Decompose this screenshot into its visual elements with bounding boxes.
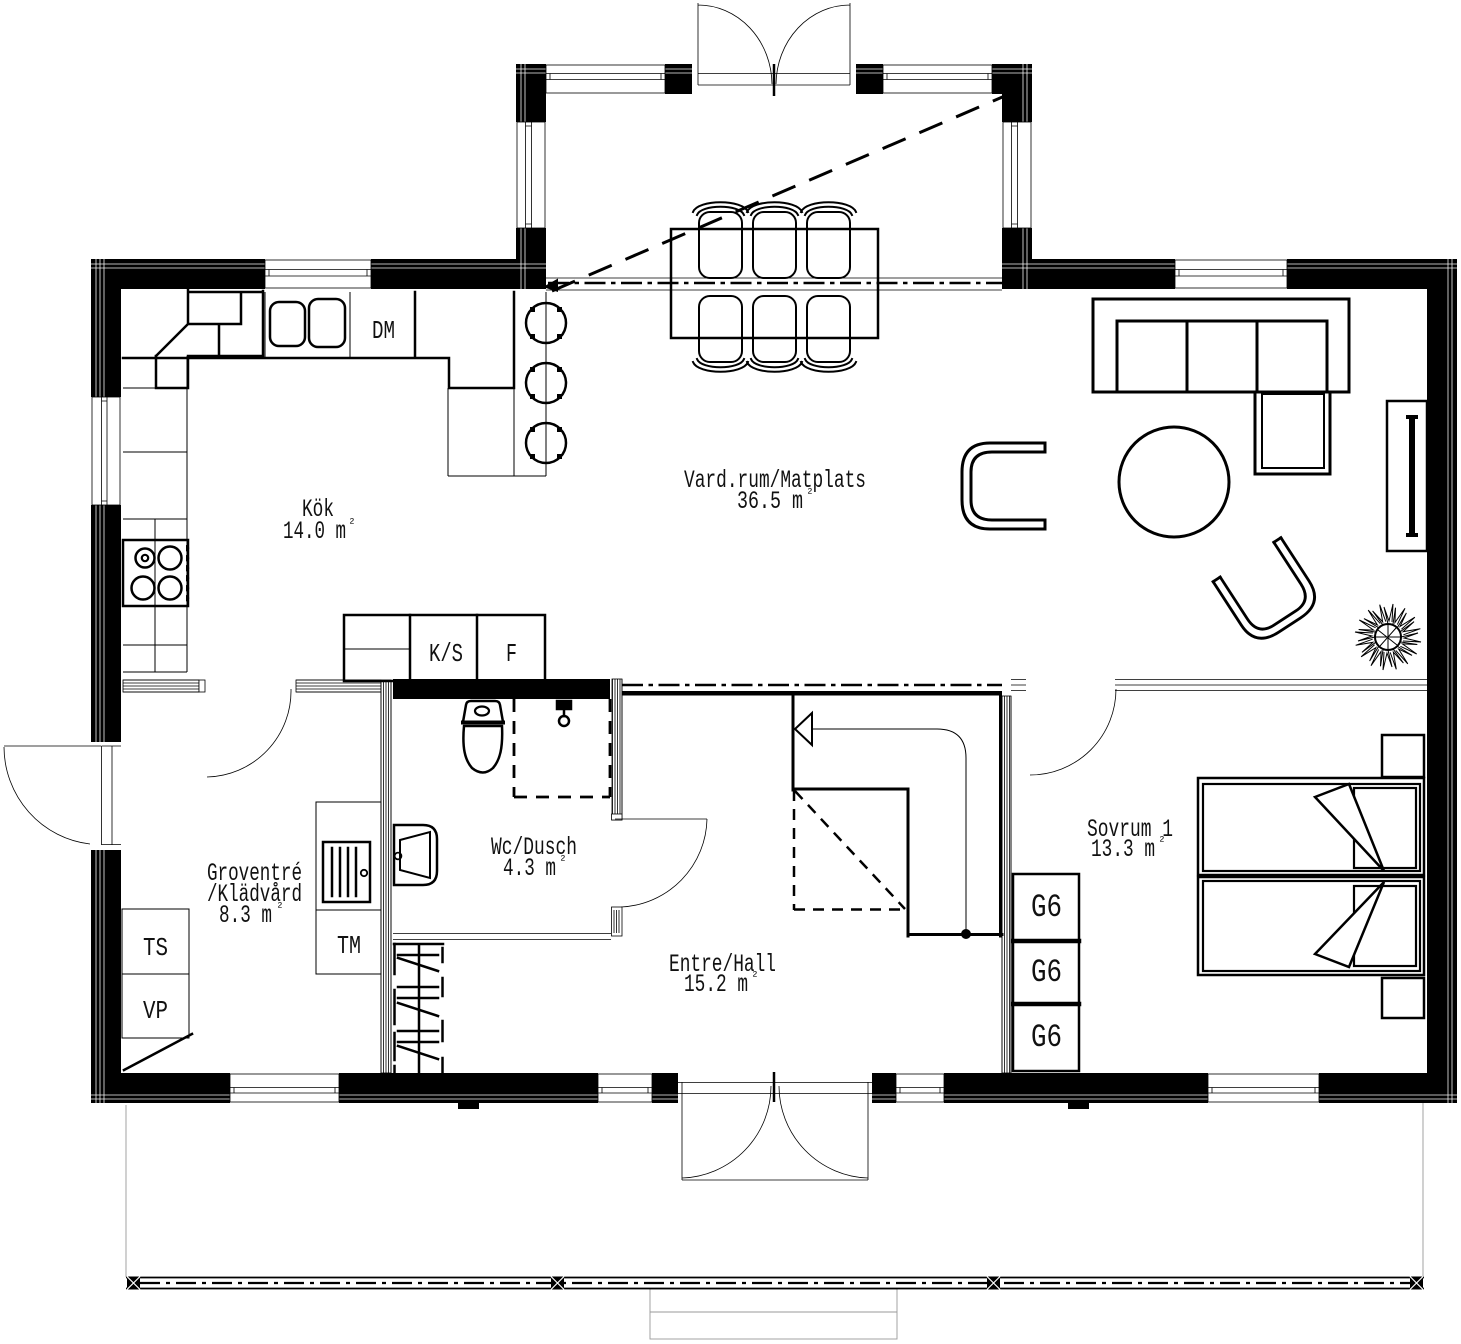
svg-text:G6: G6 <box>1031 1019 1062 1056</box>
svg-text:²: ² <box>348 516 356 531</box>
svg-text:G6: G6 <box>1031 954 1062 991</box>
svg-text:DM: DM <box>372 316 395 346</box>
svg-text:4.3 m: 4.3 m <box>503 854 556 883</box>
svg-text:G6: G6 <box>1031 889 1062 926</box>
svg-text:8.3 m: 8.3 m <box>219 901 272 930</box>
svg-text:K/S: K/S <box>429 639 463 669</box>
svg-text:F: F <box>506 639 517 669</box>
svg-text:13.3 m: 13.3 m <box>1091 835 1155 864</box>
svg-text:36.5 m: 36.5 m <box>737 487 803 516</box>
svg-text:VP: VP <box>143 996 168 1026</box>
svg-text:²: ² <box>1158 834 1166 849</box>
svg-text:TM: TM <box>337 931 361 961</box>
svg-text:TS: TS <box>143 933 168 963</box>
svg-text:²: ² <box>276 900 284 915</box>
svg-text:²: ² <box>559 853 567 868</box>
svg-text:²: ² <box>751 969 759 984</box>
svg-text:²: ² <box>806 486 814 501</box>
svg-text:15.2 m: 15.2 m <box>684 970 748 999</box>
svg-text:14.0 m: 14.0 m <box>283 517 346 546</box>
